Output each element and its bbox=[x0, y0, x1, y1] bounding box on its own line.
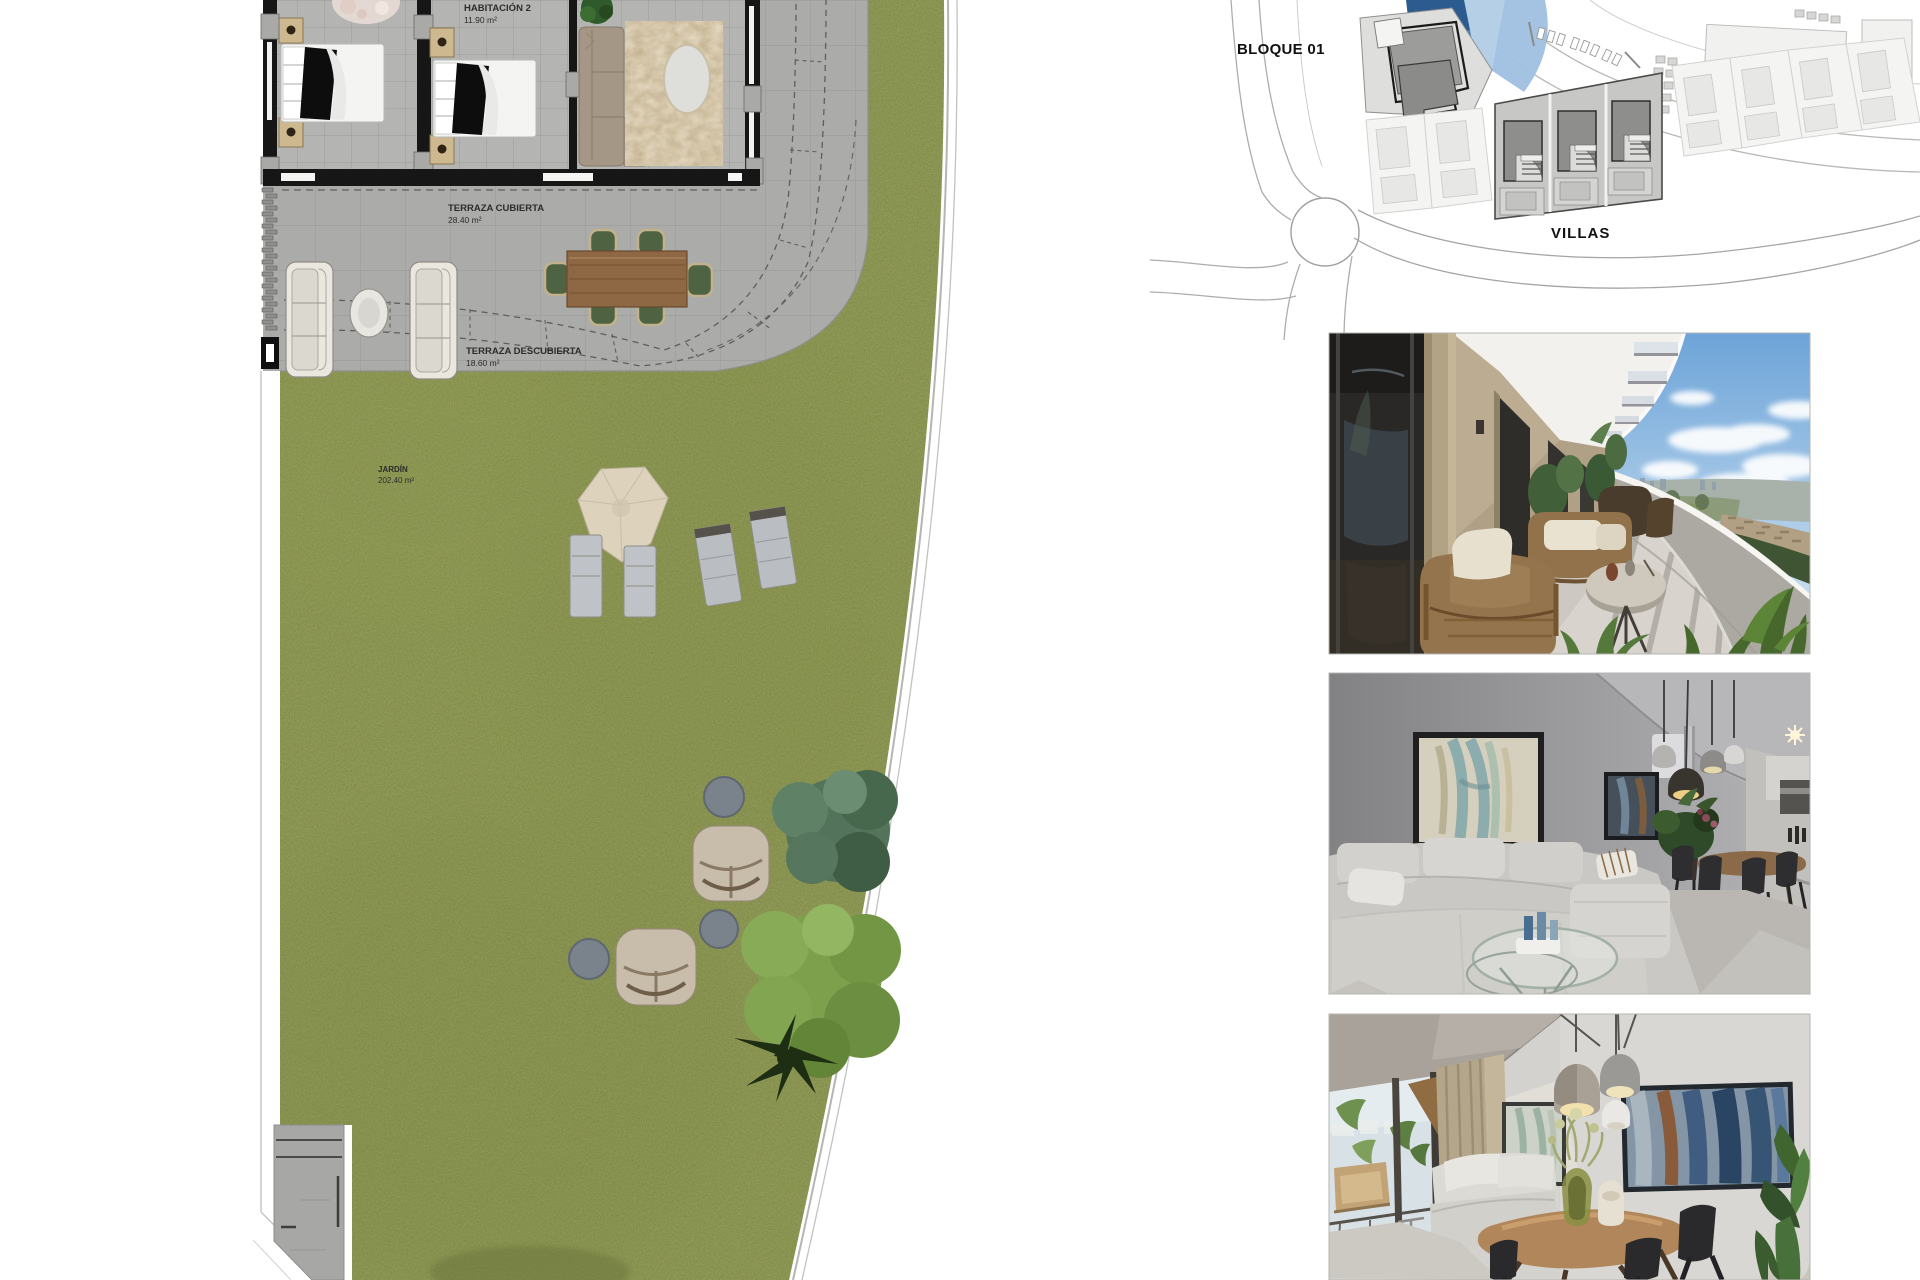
svg-text:11.90 m²: 11.90 m² bbox=[464, 15, 497, 25]
svg-text:TERRAZA CUBIERTA: TERRAZA CUBIERTA bbox=[448, 203, 544, 214]
svg-text:TERRAZA DESCUBIERTA: TERRAZA DESCUBIERTA bbox=[466, 346, 582, 357]
svg-text:202.40 m²: 202.40 m² bbox=[378, 476, 414, 485]
svg-text:28.40 m²: 28.40 m² bbox=[448, 215, 482, 225]
svg-text:BLOQUE 01: BLOQUE 01 bbox=[1237, 41, 1325, 58]
svg-text:18.60 m²: 18.60 m² bbox=[466, 358, 500, 368]
svg-text:VILLAS: VILLAS bbox=[1551, 225, 1610, 242]
svg-text:JARDÍN: JARDÍN bbox=[378, 465, 408, 474]
svg-text:HABITACIÓN 2: HABITACIÓN 2 bbox=[464, 2, 531, 14]
